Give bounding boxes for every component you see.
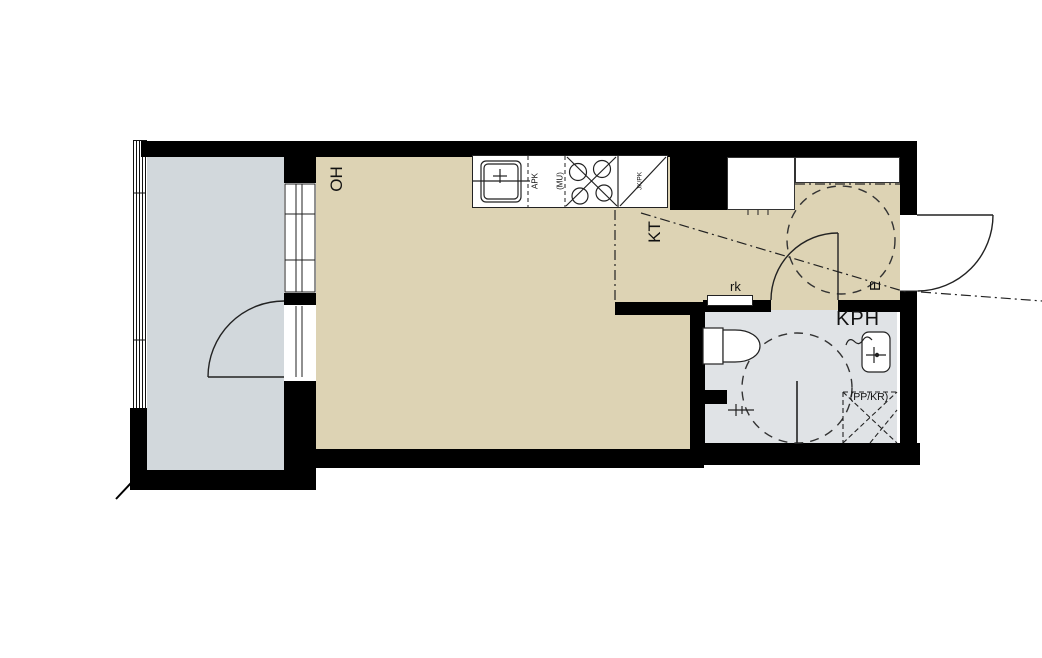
tall-cabinet-label: JK/PK [638,172,645,190]
balcony-window-opening [284,183,316,293]
bathroom-floor [703,310,897,445]
balcony-railing-hatch [133,140,147,409]
wall-kitchen-east-block [670,141,727,210]
kitchen-label: KT [646,221,664,243]
wall-living-bathroom [690,305,705,450]
dishwasher-label-line2: (MU) [556,172,564,190]
wall-right-above-entry-door [900,141,917,215]
entry-closet-a [727,157,795,210]
dishwasher-label-line1: APK [531,172,539,190]
balcony-floor [147,155,284,471]
wall-shower-stub [690,390,727,404]
wall-balcony-left-lower [130,408,147,490]
entry-door-opening [900,215,917,291]
wall-left-between-openings [284,293,316,305]
wall-left-above-window [284,155,316,183]
laundry-reservation-label: (PP/KR) [837,392,901,403]
balcony-door-opening [284,305,316,381]
entry-label: E [868,281,884,291]
electrical-cabinet-rk [707,295,753,306]
closet-label: rk [730,280,741,294]
entry-closet-b [795,157,900,183]
wall-bottom-living [284,449,704,468]
wall-balcony-bottom [130,470,316,490]
living-room-label: OH [328,166,346,192]
floor-plan: OH KT E KPH rk APK (MU) JK/PK (PP/KR) [0,0,1042,658]
wall-bottom-bathroom [690,443,920,465]
dishwasher-label: APK (MU) [514,172,581,190]
bathroom-label: KPH [836,309,880,330]
wall-right-below-entry-door [900,291,917,465]
